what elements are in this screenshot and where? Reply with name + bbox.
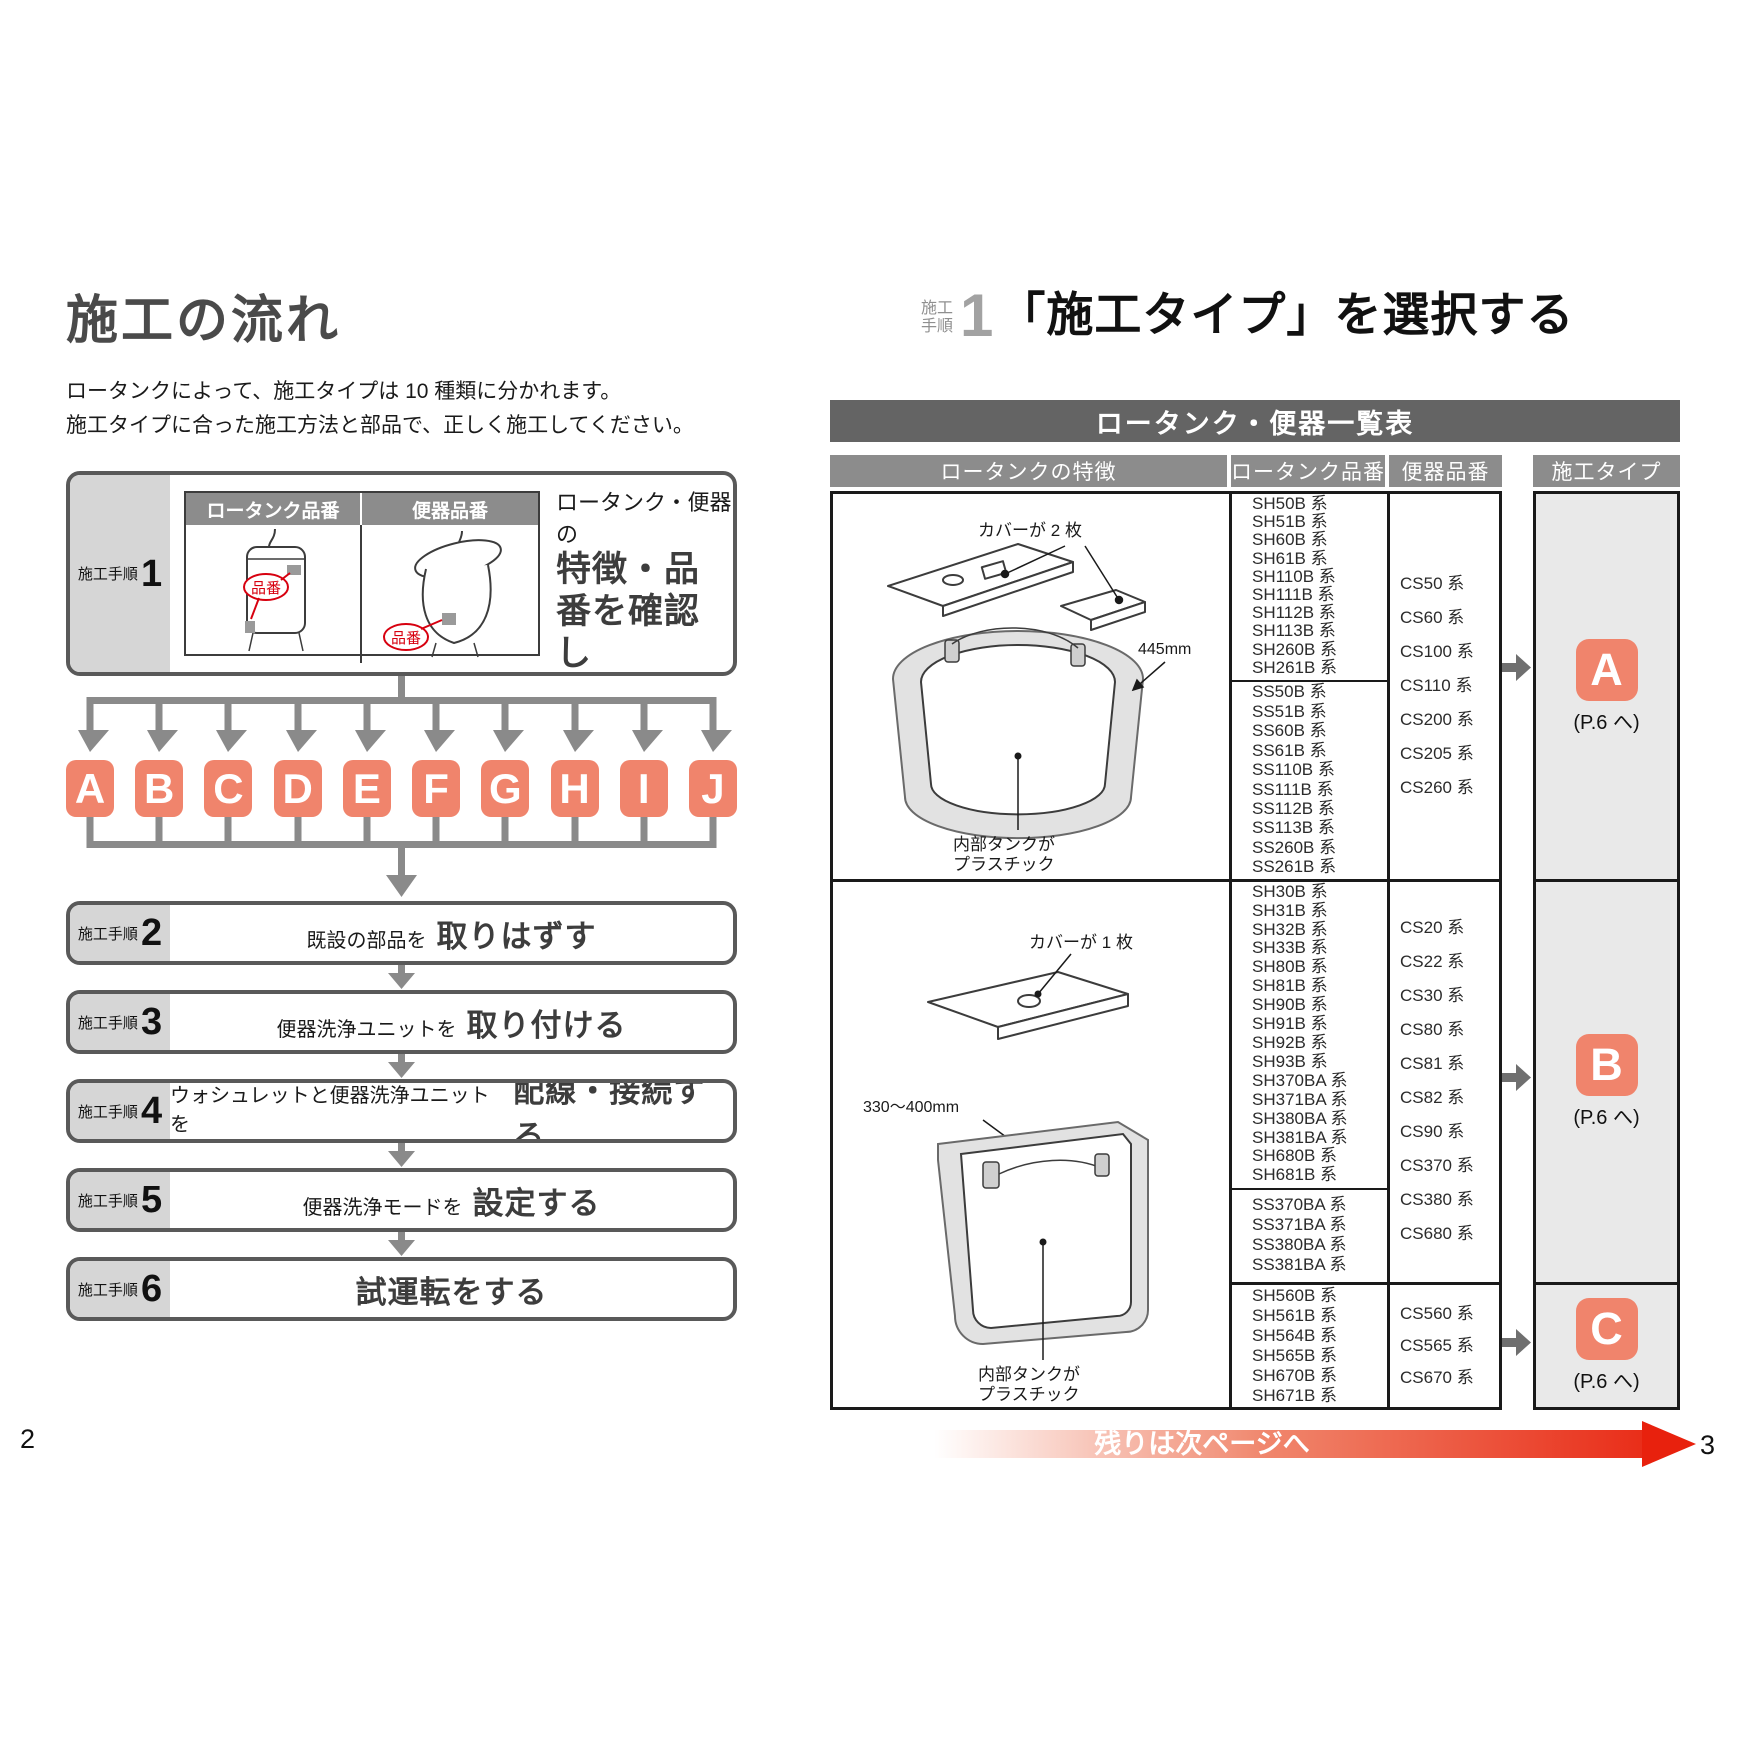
step-number: 1 <box>141 555 162 593</box>
table-banner: ロータンク・便器一覧表 <box>830 400 1680 442</box>
tank-models-a-ss: SS50B 系SS51B 系SS60B 系SS61B 系SS110B 系SS11… <box>1232 682 1387 877</box>
tank-width-label: 330～400mm <box>863 1099 959 1116</box>
step-3-text: 便器洗浄ユニットを 取り付ける <box>170 1000 733 1045</box>
right-arrow-type-c <box>1502 1327 1532 1358</box>
step-5-text: 便器洗浄モードを 設定する <box>170 1178 733 1223</box>
intro-text: ロータンクによって、施工タイプは 10 種類に分かれます。 施工タイプに合った施… <box>66 375 737 443</box>
page-title: 施工の流れ <box>66 278 737 353</box>
step-3-box: 施工手順 3 便器洗浄ユニットを 取り付ける <box>66 990 737 1054</box>
down-arrow <box>66 965 737 990</box>
intro-line: 施工タイプに合った施工方法と部品で、正しく施工してください。 <box>66 409 737 443</box>
type-page-ref-b: (P.6 へ) <box>1573 1101 1639 1130</box>
tank-hinban-header: ロータンク品番 <box>186 493 362 525</box>
tank-width-label: 445mm <box>1138 641 1191 658</box>
type-section-a: A (P.6 へ) <box>1536 494 1677 879</box>
page-number-right: 3 <box>1700 1430 1715 1461</box>
type-section-c: C (P.6 へ) <box>1536 1285 1677 1407</box>
column-header-feature: ロータンクの特徴 <box>830 455 1227 487</box>
toilet-sketch-svg: 品番 <box>366 525 534 663</box>
tank-feature-a: カバーが 2 枚 445mm 内部タンクが プラスチック <box>833 494 1227 877</box>
step-4-box: 施工手順 4 ウォシュレットと便器洗浄ユニットを 配線・接続する <box>66 1079 737 1143</box>
step-1-instruction: 特徴・品番を確認し 「施工タイプ」 を選択する <box>556 549 733 676</box>
inner-tank-label2: プラスチック <box>978 1385 1080 1404</box>
type-letter-d: D <box>274 760 322 817</box>
step-number-large: 1 <box>960 286 993 346</box>
table-grid-line <box>1229 494 1232 1407</box>
table-grid-line <box>833 879 1499 882</box>
step-3-label: 施工手順 3 <box>70 994 170 1050</box>
step-6-box: 施工手順 6 試運転をする <box>66 1257 737 1321</box>
tank-models-c-sh: SH560B 系SH561B 系SH564B 系SH565B 系SH670B 系… <box>1232 1285 1387 1407</box>
tank-sketch-svg: 品番 <box>189 525 357 663</box>
table-body: カバーが 2 枚 445mm 内部タンクが プラスチック <box>830 491 1502 1410</box>
tank-illustration-one-cover: カバーが 1 枚 330～400mm 内部タンクが プラスチック <box>833 882 1227 1407</box>
type-letter-b: B <box>135 760 183 817</box>
step-4-text: ウォシュレットと便器洗浄ユニットを 配線・接続する <box>170 1079 733 1143</box>
next-page-text: 残りは次ページへ <box>1094 1429 1309 1459</box>
hinban-sticker <box>245 621 255 633</box>
page-number-left: 2 <box>20 1424 35 1455</box>
construction-type-column: 施工タイプ A (P.6 へ) B (P.6 へ) C (P.6 へ) <box>1533 455 1680 1410</box>
step-label-text: 施工手順 <box>78 563 138 584</box>
type-page-ref-a: (P.6 へ) <box>1573 706 1639 735</box>
type-letter-a: A <box>66 760 114 817</box>
type-letter-row: A B C D E F G H I J <box>66 760 737 817</box>
inner-tank-label2: プラスチック <box>953 855 1055 874</box>
cover-count-label: カバーが 2 枚 <box>978 521 1082 540</box>
tank-feature-bc: カバーが 1 枚 330～400mm 内部タンクが プラスチック <box>833 882 1227 1407</box>
inner-tank-label: 内部タンクが <box>978 1365 1080 1384</box>
type-column-body: A (P.6 へ) B (P.6 へ) C (P.6 へ) <box>1533 491 1680 1410</box>
step-6-label: 施工手順 6 <box>70 1261 170 1317</box>
toilet-models-b: CS20 系CS22 系CS30 系CS80 系CS81 系CS82 系CS90… <box>1390 882 1502 1280</box>
step-1-label: 施工手順 1 <box>70 475 170 672</box>
type-page-ref-c: (P.6 へ) <box>1573 1365 1639 1394</box>
tank-models-a-sh: SH50B 系SH51B 系SH60B 系SH61B 系SH110B 系SH11… <box>1232 494 1387 678</box>
type-section-b: B (P.6 へ) <box>1536 882 1677 1282</box>
step-4-label: 施工手順 4 <box>70 1083 170 1139</box>
flow-connector-bottom <box>66 817 737 901</box>
step-5-box: 施工手順 5 便器洗浄モードを 設定する <box>66 1168 737 1232</box>
type-letter-e: E <box>343 760 391 817</box>
toilet-models-c: CS560 系CS565 系CS670 系 <box>1390 1285 1502 1407</box>
step-1-box: 施工手順 1 ロータンク品番 便器品番 <box>66 471 737 676</box>
type-badge-a: A <box>1576 639 1638 701</box>
left-page: 施工の流れ ロータンクによって、施工タイプは 10 種類に分かれます。 施工タイ… <box>66 278 737 1321</box>
table-grid-line <box>1387 494 1390 1407</box>
tank-illustration-small: 品番 <box>186 525 362 663</box>
right-arrow-type-a <box>1502 652 1532 683</box>
hinban-sticker <box>442 613 456 625</box>
intro-line: ロータンクによって、施工タイプは 10 種類に分かれます。 <box>66 375 737 409</box>
tank-models-b-ss: SS370BA 系SS371BA 系SS380BA 系SS381BA 系 <box>1232 1190 1387 1280</box>
down-arrow <box>66 1232 737 1257</box>
inner-tank-label: 内部タンクが <box>953 835 1055 854</box>
column-header-type: 施工タイプ <box>1533 455 1680 487</box>
hinban-tag: 品番 <box>391 630 421 647</box>
type-letter-f: F <box>412 760 460 817</box>
step-2-text: 既設の部品を 取りはずす <box>170 911 733 956</box>
step-2-label: 施工手順 2 <box>70 905 170 961</box>
right-arrow-type-b <box>1502 1062 1532 1093</box>
down-arrow <box>66 1054 737 1079</box>
section-title: 「施工タイプ」を選択する <box>998 286 1574 345</box>
type-letter-h: H <box>551 760 599 817</box>
next-page-arrow-banner: 残りは次ページへ <box>830 1421 1698 1467</box>
column-header-toilet: 便器品番 <box>1389 455 1502 487</box>
table-grid-line <box>1232 1188 1387 1190</box>
type-letter-g: G <box>481 760 529 817</box>
tank-models-b-sh: SH30B 系SH31B 系SH32B 系SH33B 系SH80B 系SH81B… <box>1232 882 1387 1186</box>
cover-count-label: カバーが 1 枚 <box>1029 933 1133 952</box>
toilet-models-a: CS50 系CS60 系CS100 系CS110 系CS200 系CS205 系… <box>1390 494 1502 877</box>
table-grid-line <box>1229 1282 1499 1285</box>
step-kanji-label: 施工 手順 <box>921 300 953 337</box>
down-arrow <box>66 1143 737 1168</box>
table-grid-line <box>1232 680 1387 682</box>
column-header-tank: ロータンク品番 <box>1231 455 1385 487</box>
tank-illustration-two-covers: カバーが 2 枚 445mm 内部タンクが プラスチック <box>833 494 1227 877</box>
type-letter-j: J <box>689 760 737 817</box>
type-letter-i: I <box>620 760 668 817</box>
right-heading: 施工 手順 1 「施工タイプ」を選択する <box>921 286 1574 346</box>
type-letter-c: C <box>204 760 252 817</box>
toilet-hinban-header: 便器品番 <box>362 493 538 525</box>
step-5-label: 施工手順 5 <box>70 1172 170 1228</box>
step-2-box: 施工手順 2 既設の部品を 取りはずす <box>66 901 737 965</box>
type-badge-b: B <box>1576 1034 1638 1096</box>
step-1-text: ロータンク・便器の 特徴・品番を確認し 「施工タイプ」 を選択する <box>540 475 733 672</box>
hinban-tag: 品番 <box>251 580 281 597</box>
flow-connector-top <box>66 676 737 760</box>
step-1-lead: ロータンク・便器の <box>556 485 733 549</box>
tank-toilet-table: ロータンクの特徴 ロータンク品番 便器品番 カバーが 2 枚 <box>830 455 1502 1410</box>
step-6-text: 試運転をする <box>170 1267 733 1312</box>
type-badge-c: C <box>1576 1298 1638 1360</box>
toilet-illustration-small: 品番 <box>362 525 538 663</box>
hinban-image-table: ロータンク品番 便器品番 <box>184 491 540 656</box>
